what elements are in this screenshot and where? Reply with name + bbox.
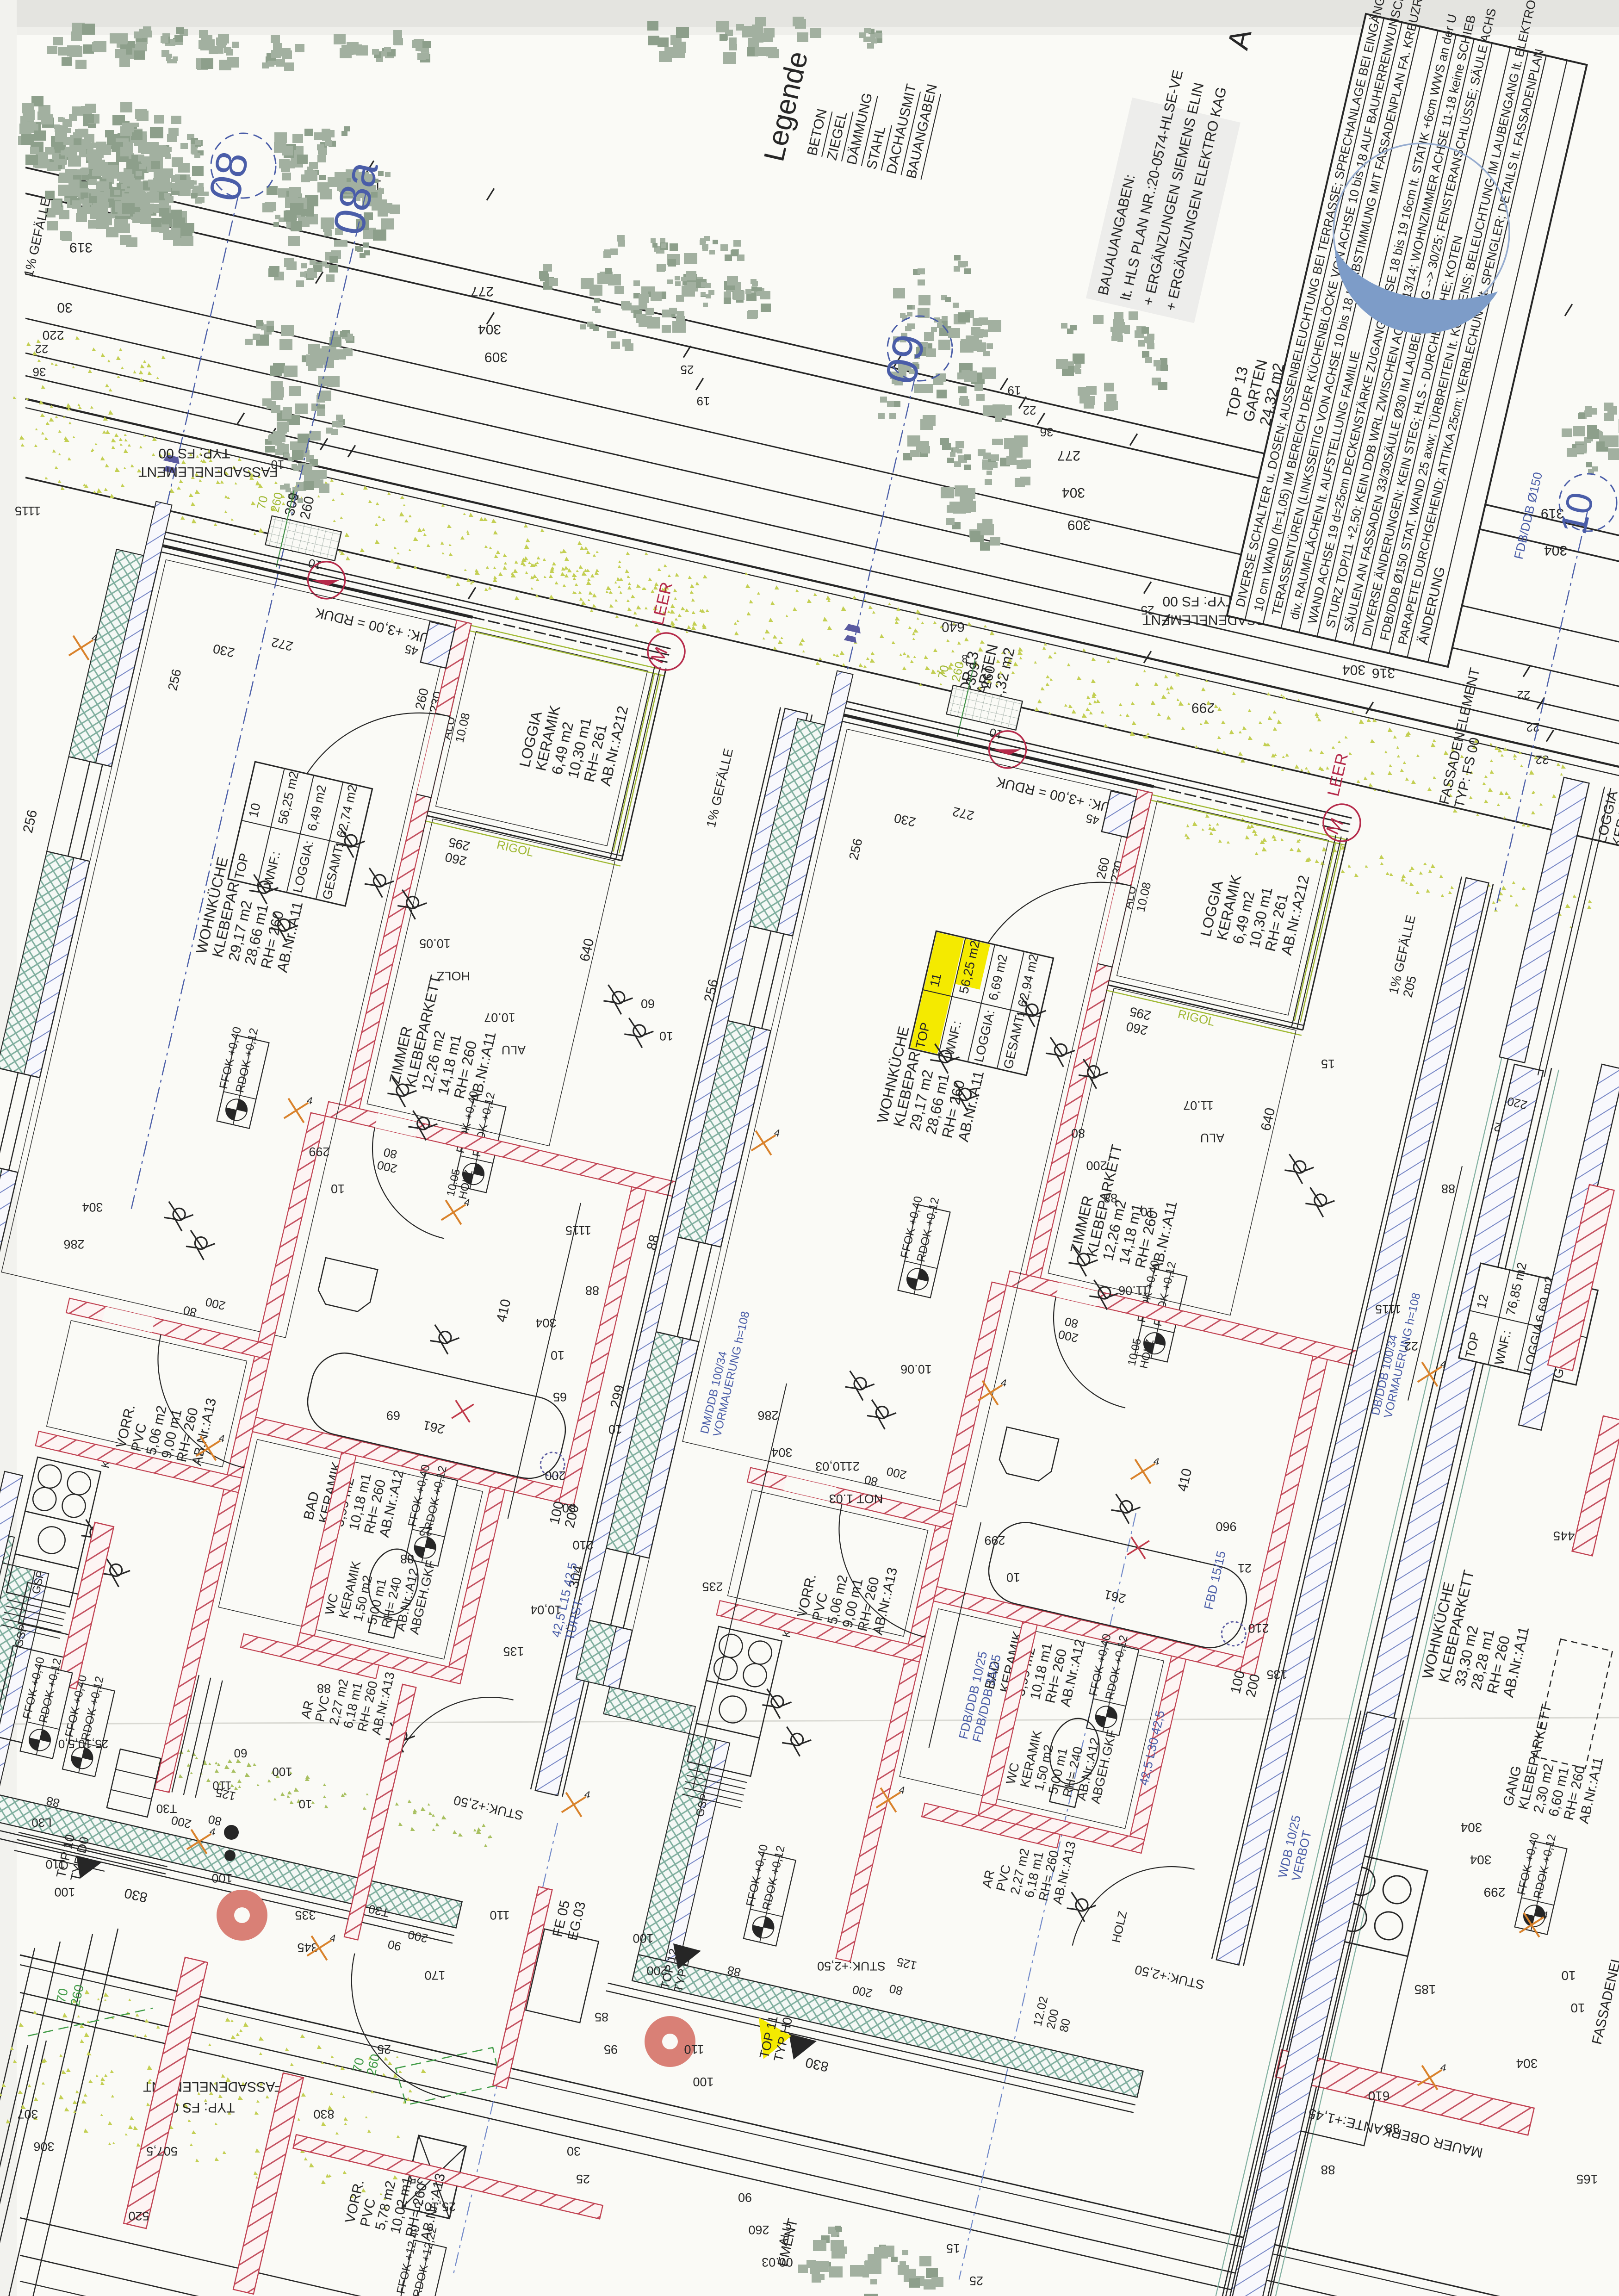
svg-text:25: 25 <box>681 363 694 377</box>
svg-text:10: 10 <box>331 1182 345 1196</box>
svg-text:ALU: ALU <box>502 1043 526 1057</box>
svg-text:165: 165 <box>1576 2172 1598 2186</box>
svg-text:200: 200 <box>1086 1159 1107 1173</box>
svg-text:445: 445 <box>1553 1529 1575 1543</box>
svg-text:309: 309 <box>1067 517 1091 533</box>
svg-text:10.07: 10.07 <box>484 1011 515 1024</box>
svg-text:22: 22 <box>419 1524 433 1538</box>
svg-text:507,5: 507,5 <box>146 2144 178 2158</box>
svg-text:TYP: FS 00: TYP: FS 00 <box>158 446 230 461</box>
svg-text:10: 10 <box>299 1797 312 1811</box>
svg-text:60: 60 <box>641 997 655 1011</box>
svg-text:T30: T30 <box>156 1802 177 1816</box>
svg-text:80: 80 <box>562 1501 576 1515</box>
svg-text:22: 22 <box>1517 688 1531 702</box>
svg-text:08: 08 <box>200 147 258 205</box>
svg-text:FASSADENELEMENT: FASSADENELEMENT <box>138 464 278 479</box>
svg-text:309: 309 <box>484 349 508 365</box>
svg-text:335: 335 <box>295 1908 316 1922</box>
svg-text:299: 299 <box>309 1145 329 1159</box>
svg-text:36: 36 <box>33 365 46 379</box>
svg-text:100: 100 <box>211 1871 232 1885</box>
svg-text:15: 15 <box>1321 1057 1335 1071</box>
svg-text:277: 277 <box>1057 448 1080 463</box>
svg-text:88: 88 <box>1104 1191 1117 1205</box>
svg-text:10: 10 <box>1552 489 1601 538</box>
svg-text:25: 25 <box>969 2274 983 2288</box>
svg-text:09: 09 <box>876 330 935 388</box>
svg-text:11.07: 11.07 <box>1183 1098 1214 1112</box>
svg-text:25: 25 <box>377 2042 391 2056</box>
svg-text:220: 220 <box>43 328 64 342</box>
svg-text:135: 135 <box>503 1644 524 1658</box>
svg-text:520: 520 <box>128 2209 149 2223</box>
svg-text:19: 19 <box>697 394 710 408</box>
svg-text:200: 200 <box>545 1469 565 1483</box>
svg-text:69: 69 <box>386 1409 400 1422</box>
svg-text:88: 88 <box>317 1682 331 1695</box>
svg-text:304: 304 <box>1062 485 1085 500</box>
svg-text:36: 36 <box>1040 425 1054 439</box>
svg-text:22: 22 <box>35 342 49 356</box>
svg-text:95: 95 <box>604 2042 618 2056</box>
svg-text:299: 299 <box>1484 1885 1506 1899</box>
svg-text:2110,03: 2110,03 <box>815 1459 860 1473</box>
svg-text:210: 210 <box>1248 1621 1269 1635</box>
svg-text:10: 10 <box>551 1348 564 1362</box>
svg-text:10: 10 <box>659 1029 673 1043</box>
svg-text:30: 30 <box>57 300 72 315</box>
svg-text:88: 88 <box>1321 2163 1335 2177</box>
svg-text:10.06: 10.06 <box>900 1362 932 1376</box>
svg-text:304: 304 <box>1461 1820 1483 1835</box>
svg-text:22: 22 <box>1404 1339 1418 1353</box>
svg-text:110: 110 <box>684 2042 704 2056</box>
svg-text:TYP: FS 00: TYP: FS 00 <box>1162 594 1234 609</box>
svg-text:170: 170 <box>424 1968 445 1982</box>
svg-text:88: 88 <box>585 1284 599 1297</box>
svg-text:135: 135 <box>1266 1668 1287 1682</box>
svg-text:00.03: 00.03 <box>762 2255 793 2269</box>
svg-text:304: 304 <box>82 1200 103 1214</box>
svg-text:10: 10 <box>1570 2001 1585 2015</box>
svg-text:304: 304 <box>1342 662 1365 677</box>
svg-text:10: 10 <box>608 1422 622 1436</box>
svg-text:25: 25 <box>576 2172 590 2186</box>
svg-text:22: 22 <box>1023 403 1036 417</box>
svg-text:210: 210 <box>572 1538 593 1552</box>
svg-text:100: 100 <box>54 1885 75 1899</box>
svg-text:21: 21 <box>1238 1561 1252 1575</box>
svg-text:286: 286 <box>757 1409 778 1422</box>
svg-text:80: 80 <box>1071 1126 1085 1140</box>
svg-text:110: 110 <box>212 1779 231 1793</box>
svg-text:1115: 1115 <box>565 1223 591 1237</box>
svg-text:15: 15 <box>946 2241 960 2255</box>
svg-text:30: 30 <box>567 2144 581 2158</box>
svg-text:316: 316 <box>1372 665 1395 681</box>
svg-text:319: 319 <box>69 240 93 255</box>
svg-text:19: 19 <box>1008 384 1021 397</box>
svg-text:60: 60 <box>234 1746 248 1760</box>
svg-text:640: 640 <box>942 619 965 634</box>
svg-text:304: 304 <box>478 322 501 337</box>
svg-text:ALU: ALU <box>1200 1131 1225 1145</box>
svg-text:299: 299 <box>1191 700 1215 715</box>
svg-text:306: 306 <box>33 2140 54 2153</box>
svg-text:304: 304 <box>1544 543 1567 558</box>
svg-text:10: 10 <box>1006 1570 1020 1584</box>
svg-text:10: 10 <box>1141 1205 1154 1219</box>
svg-text:25,10,5,0: 25,10,5,0 <box>58 1737 108 1751</box>
svg-text:304: 304 <box>1516 2056 1538 2071</box>
svg-text:88: 88 <box>1441 1182 1455 1196</box>
svg-text:10: 10 <box>1561 1968 1576 1983</box>
svg-text:304: 304 <box>1470 1853 1492 1867</box>
svg-text:100: 100 <box>272 1765 292 1779</box>
svg-text:610: 610 <box>1368 2089 1390 2103</box>
svg-text:307: 307 <box>17 2107 38 2121</box>
svg-text:STUK:+2,50: STUK:+2,50 <box>817 1959 886 1973</box>
svg-text:277: 277 <box>471 284 494 299</box>
svg-text:85: 85 <box>595 2010 608 2024</box>
svg-text:NOT 1.03: NOT 1.03 <box>829 1492 883 1506</box>
svg-text:1115: 1115 <box>1375 1302 1401 1316</box>
svg-text:200: 200 <box>646 1964 667 1978</box>
svg-text:299: 299 <box>984 1533 1005 1547</box>
svg-text:L30: L30 <box>31 1816 51 1830</box>
svg-text:235: 235 <box>702 1580 723 1594</box>
svg-text:88: 88 <box>1385 2121 1400 2135</box>
svg-text:100: 100 <box>693 2075 713 2089</box>
svg-text:185: 185 <box>1414 1982 1436 1997</box>
svg-text:304: 304 <box>771 1446 792 1459</box>
svg-text:10.05: 10.05 <box>419 937 451 950</box>
svg-text:10,04: 10,04 <box>530 1603 562 1617</box>
svg-text:830: 830 <box>313 2107 334 2121</box>
svg-text:1115: 1115 <box>15 504 41 518</box>
svg-text:110: 110 <box>490 1908 509 1922</box>
svg-text:260: 260 <box>748 2223 769 2237</box>
svg-text:11.06: 11.06 <box>1118 1284 1149 1297</box>
svg-text:32: 32 <box>1536 753 1549 767</box>
svg-text:960: 960 <box>1216 1520 1236 1533</box>
svg-text:65: 65 <box>553 1390 567 1404</box>
svg-text:286: 286 <box>63 1237 84 1251</box>
svg-text:88: 88 <box>400 1552 414 1566</box>
svg-text:HOLZ: HOLZ <box>437 969 470 983</box>
svg-text:100: 100 <box>633 1931 653 1945</box>
svg-text:90: 90 <box>738 2191 752 2204</box>
